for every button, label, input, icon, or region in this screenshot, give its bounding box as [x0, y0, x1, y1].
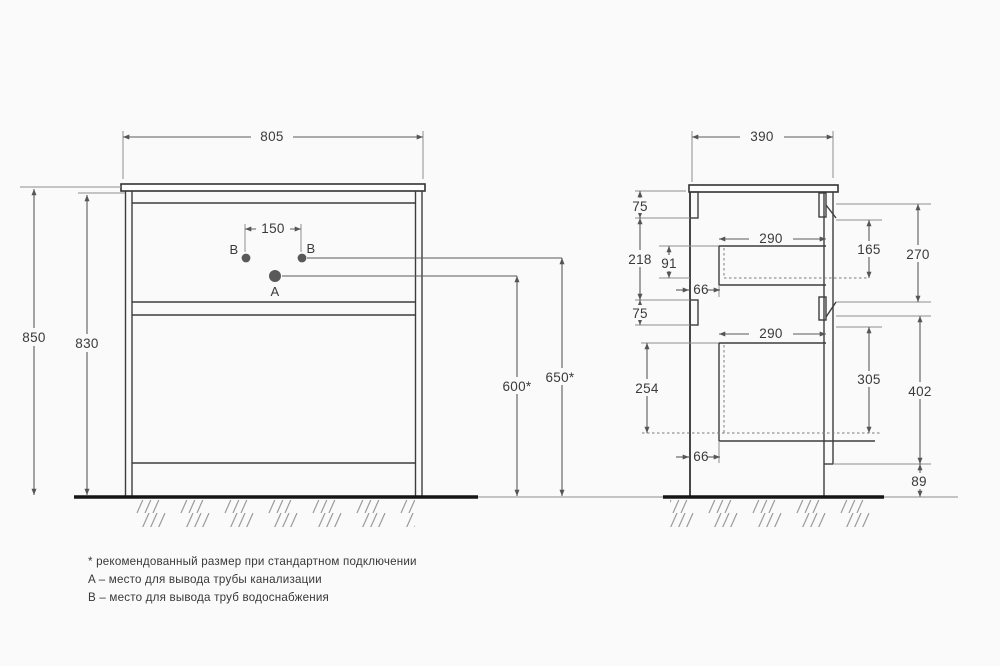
dim-label-hole-spacing: 150	[261, 221, 284, 236]
side-depth-dimension: 390	[692, 128, 833, 182]
drain-height-dimension: 600*	[494, 276, 541, 496]
dim-label-drawer-bottom-width: 290	[759, 326, 782, 341]
front-width-dimension: 805	[123, 128, 423, 179]
dim-label-span-218: 218	[628, 252, 651, 267]
point-b-left-label: B	[230, 242, 239, 257]
side-view: 390 290	[620, 128, 958, 527]
dim-label-span-254: 254	[635, 381, 659, 396]
dim-label-span-165: 165	[857, 242, 880, 257]
dim-label-top-rail: 75	[632, 199, 648, 214]
dim-label-drawer-top-width: 290	[759, 231, 782, 246]
dim-label-recess-top: 66	[693, 282, 709, 297]
dim-label-front-height-carcass: 830	[75, 336, 98, 351]
water-height-dimension: 650*	[537, 258, 584, 496]
vanity-dimension-drawing: 805 850 830	[0, 0, 1000, 666]
legend-note-a: A – место для вывода трубы канализации	[88, 573, 322, 586]
point-b-right-label: B	[307, 241, 316, 256]
dim-label-span-402: 402	[908, 384, 931, 399]
point-a-label: A	[271, 284, 280, 299]
dim-label-span-305: 305	[857, 372, 880, 387]
dim-label-plinth: 89	[911, 474, 927, 489]
dim-label-front-width: 805	[260, 129, 283, 144]
recess-bottom-dimension: 66	[676, 441, 720, 464]
pipe-notch-bottom	[819, 297, 826, 320]
side-right-upper-dimensions: 165 270	[836, 204, 940, 302]
front-countertop	[121, 184, 425, 191]
dim-label-front-height-total: 850	[22, 330, 45, 345]
side-right-lower-dimensions: 305 402 89	[833, 316, 942, 497]
dim-label-span-270: 270	[906, 247, 929, 262]
dim-label-span-91: 91	[661, 256, 677, 271]
dim-label-recess-bottom: 66	[693, 449, 709, 464]
lower-drawer: 290 254	[625, 325, 880, 441]
point-b-right-dot	[298, 254, 307, 263]
front-view: 805 850 830	[13, 128, 663, 527]
legend-note-recommended: * рекомендованный размер при стандартном…	[88, 555, 417, 568]
point-a-dot	[269, 270, 281, 282]
legend-note-b: B – место для вывода труб водоснабжения	[88, 591, 329, 604]
technical-drawing-page: 805 850 830	[0, 0, 1000, 666]
dim-label-water-height: 650*	[546, 370, 575, 385]
legend: * рекомендованный размер при стандартном…	[88, 555, 417, 604]
dim-label-mid-rail: 75	[632, 306, 648, 321]
front-floor-hatching	[128, 500, 415, 527]
point-b-left-dot	[242, 254, 251, 263]
side-left-dimensions: 75 218 91 75	[620, 191, 690, 325]
front-carcass-height-dimension: 830	[66, 193, 125, 495]
side-floor-hatching	[670, 500, 882, 527]
pipe-outlet-points: 150 B B A	[230, 221, 562, 299]
recess-top-dimension: 66	[676, 282, 720, 297]
dim-label-drain-height: 600*	[503, 379, 532, 394]
dim-label-side-depth: 390	[750, 129, 773, 144]
pipe-notch-top	[819, 193, 826, 217]
side-countertop	[689, 185, 838, 192]
